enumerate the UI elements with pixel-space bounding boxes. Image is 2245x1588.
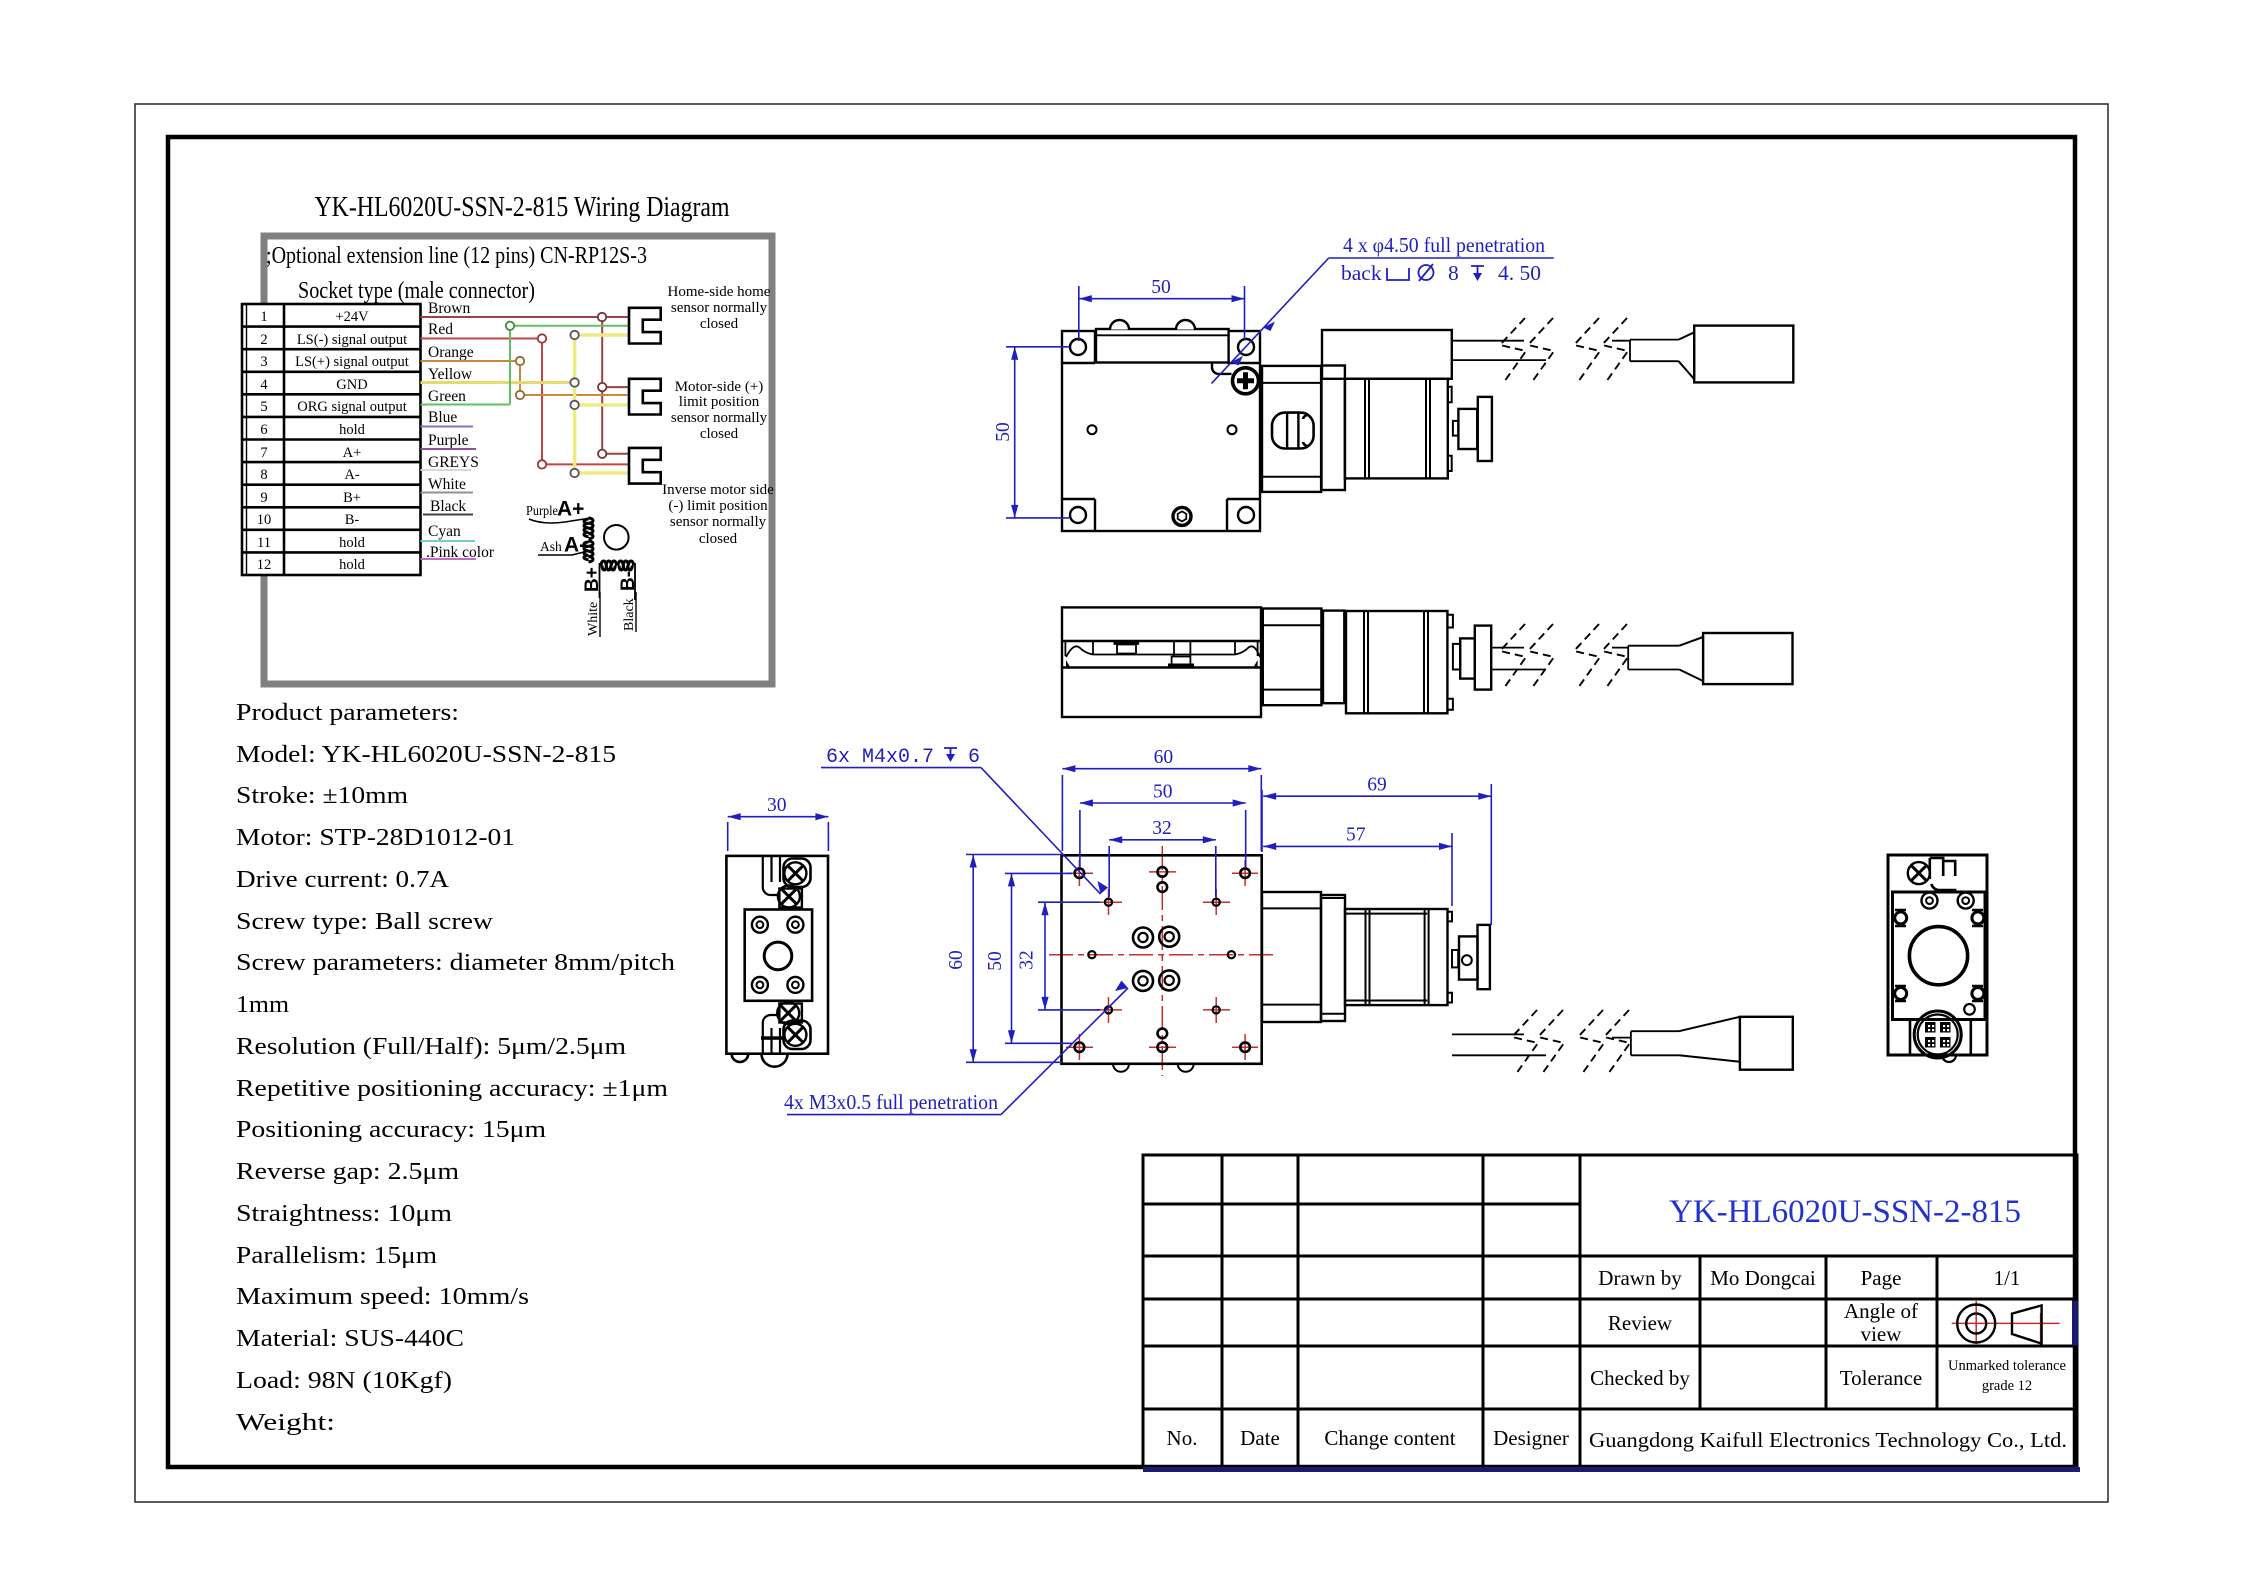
svg-text:Product parameters:: Product parameters: bbox=[236, 700, 459, 726]
svg-text:YK-HL6020U-SSN-2-815: YK-HL6020U-SSN-2-815 bbox=[1669, 1194, 2021, 1230]
svg-text:60: 60 bbox=[1154, 747, 1174, 768]
svg-text:closed: closed bbox=[700, 316, 739, 332]
svg-text:Drawn by: Drawn by bbox=[1598, 1266, 1682, 1290]
svg-text:30: 30 bbox=[767, 795, 787, 816]
svg-text:5: 5 bbox=[260, 399, 267, 415]
svg-text:hold: hold bbox=[339, 557, 366, 573]
svg-text:Repetitive positioning accurac: Repetitive positioning accuracy: ±1μm bbox=[236, 1076, 668, 1102]
svg-text:LS(+) signal output: LS(+) signal output bbox=[295, 354, 409, 370]
svg-text:Brown: Brown bbox=[428, 300, 470, 317]
svg-text:Tolerance: Tolerance bbox=[1840, 1366, 1922, 1390]
svg-text:Maximum speed: 10mm/s: Maximum speed: 10mm/s bbox=[236, 1284, 529, 1310]
svg-text:A+: A+ bbox=[343, 445, 362, 461]
svg-text:hold: hold bbox=[339, 422, 366, 438]
svg-text:limit position: limit position bbox=[679, 394, 760, 410]
svg-text:Ash: Ash bbox=[540, 539, 562, 554]
svg-text:Drive current: 0.7A: Drive current: 0.7A bbox=[236, 867, 450, 893]
svg-text:7: 7 bbox=[260, 445, 267, 461]
svg-text:closed: closed bbox=[699, 531, 738, 547]
svg-text:;Optional extension line (12 p: ;Optional extension line (12 pins) CN-RP… bbox=[266, 243, 647, 269]
svg-text:Weight:: Weight: bbox=[236, 1410, 335, 1436]
svg-text:8: 8 bbox=[260, 467, 267, 483]
svg-text:4. 50: 4. 50 bbox=[1498, 261, 1541, 285]
svg-text:Change content: Change content bbox=[1324, 1426, 1455, 1450]
svg-text:10: 10 bbox=[257, 512, 272, 528]
svg-text:8: 8 bbox=[1448, 261, 1459, 285]
svg-text:Inverse motor side: Inverse motor side bbox=[662, 482, 774, 498]
svg-text:1/1: 1/1 bbox=[1994, 1266, 2021, 1290]
svg-text:A-: A- bbox=[344, 467, 359, 483]
svg-text:Cyan: Cyan bbox=[428, 523, 461, 540]
svg-text:sensor normally: sensor normally bbox=[671, 410, 768, 426]
svg-text:Resolution (Full/Half): 5μm/2.: Resolution (Full/Half): 5μm/2.5μm bbox=[236, 1034, 626, 1060]
svg-text:B-: B- bbox=[345, 512, 360, 528]
svg-text:Checked by: Checked by bbox=[1590, 1366, 1690, 1390]
svg-text:Home-side home: Home-side home bbox=[668, 284, 771, 300]
svg-text:Black: Black bbox=[622, 598, 637, 631]
svg-text:57: 57 bbox=[1346, 825, 1366, 846]
svg-text:grade 12: grade 12 bbox=[1982, 1378, 2032, 1394]
svg-text:Socket type (male connector): Socket type (male connector) bbox=[298, 278, 535, 304]
svg-text:4: 4 bbox=[260, 377, 268, 393]
svg-text:GREYS: GREYS bbox=[428, 454, 479, 471]
svg-text:Mo Dongcai: Mo Dongcai bbox=[1710, 1266, 1816, 1290]
svg-text:Review: Review bbox=[1608, 1311, 1673, 1335]
svg-text:back: back bbox=[1341, 261, 1382, 285]
svg-text:Blue: Blue bbox=[428, 409, 457, 426]
svg-text:Black: Black bbox=[430, 498, 466, 515]
svg-text:Screw type: Ball screw: Screw type: Ball screw bbox=[236, 909, 494, 935]
svg-text:Orange: Orange bbox=[428, 344, 474, 361]
svg-text:3: 3 bbox=[260, 354, 267, 370]
svg-text:B+: B+ bbox=[582, 567, 603, 592]
svg-text:11: 11 bbox=[257, 535, 271, 551]
svg-text:Stroke: ±10mm: Stroke: ±10mm bbox=[236, 783, 408, 809]
svg-text:Purple: Purple bbox=[428, 432, 469, 449]
svg-text:Motor: STP-28D1012-01: Motor: STP-28D1012-01 bbox=[236, 825, 515, 851]
svg-text:Straightness: 10μm: Straightness: 10μm bbox=[236, 1201, 452, 1227]
svg-text:(-) limit position: (-) limit position bbox=[668, 498, 768, 514]
svg-text:A+: A+ bbox=[557, 498, 584, 521]
svg-text:50: 50 bbox=[993, 422, 1014, 442]
svg-text:6x M4x0.7: 6x M4x0.7 bbox=[826, 746, 934, 769]
svg-text:50: 50 bbox=[985, 951, 1006, 971]
svg-text:6: 6 bbox=[260, 422, 267, 438]
svg-text:Material: SUS-440C: Material: SUS-440C bbox=[236, 1326, 464, 1352]
svg-text:view: view bbox=[1861, 1322, 1903, 1346]
svg-text:32: 32 bbox=[1016, 950, 1037, 970]
svg-text:12: 12 bbox=[257, 557, 272, 573]
svg-text:9: 9 bbox=[260, 490, 267, 506]
svg-text:Purple: Purple bbox=[526, 503, 558, 518]
svg-text:hold: hold bbox=[339, 535, 366, 551]
svg-text:Unmarked tolerance: Unmarked tolerance bbox=[1948, 1358, 2066, 1374]
svg-text:Motor-side (+): Motor-side (+) bbox=[675, 379, 764, 395]
svg-text:Reverse gap: 2.5μm: Reverse gap: 2.5μm bbox=[236, 1159, 459, 1185]
svg-text:Model: YK-HL6020U-SSN-2-815: Model: YK-HL6020U-SSN-2-815 bbox=[236, 742, 616, 768]
svg-text:ORG signal output: ORG signal output bbox=[297, 399, 407, 415]
svg-text:Page: Page bbox=[1861, 1266, 1902, 1290]
svg-text:White: White bbox=[586, 602, 601, 636]
svg-text:Green: Green bbox=[428, 388, 466, 405]
svg-text:Screw parameters: diameter 8mm: Screw parameters: diameter 8mm/pitch bbox=[236, 950, 675, 976]
svg-text:69: 69 bbox=[1367, 775, 1387, 796]
svg-text:GND: GND bbox=[336, 377, 367, 393]
svg-text:Angle of: Angle of bbox=[1844, 1299, 1918, 1323]
svg-text:1mm: 1mm bbox=[236, 992, 289, 1018]
svg-text:60: 60 bbox=[946, 950, 967, 970]
svg-text:YK-HL6020U-SSN-2-815 Wiring Di: YK-HL6020U-SSN-2-815 Wiring Diagram bbox=[315, 192, 730, 223]
svg-text:1: 1 bbox=[260, 309, 267, 325]
svg-text:Date: Date bbox=[1240, 1426, 1280, 1450]
svg-text:Designer: Designer bbox=[1493, 1426, 1569, 1450]
svg-text:No.: No. bbox=[1167, 1426, 1198, 1450]
svg-text:4 x φ4.50 full penetration: 4 x φ4.50 full penetration bbox=[1343, 233, 1545, 257]
svg-text:2: 2 bbox=[260, 332, 267, 348]
svg-text:Yellow: Yellow bbox=[428, 366, 473, 383]
svg-text:sensor normally: sensor normally bbox=[670, 514, 767, 530]
svg-text:Positioning accuracy: 15μm: Positioning accuracy: 15μm bbox=[236, 1117, 546, 1143]
svg-text:sensor normally: sensor normally bbox=[671, 300, 768, 316]
svg-text:B+: B+ bbox=[343, 490, 361, 506]
svg-text:50: 50 bbox=[1153, 782, 1173, 803]
svg-text:4x M3x0.5 full penetration: 4x M3x0.5 full penetration bbox=[784, 1090, 998, 1114]
svg-text:32: 32 bbox=[1152, 818, 1172, 839]
svg-text:50: 50 bbox=[1151, 277, 1171, 298]
svg-text:Guangdong Kaifull Electronics: Guangdong Kaifull Electronics Technology… bbox=[1589, 1428, 2067, 1452]
svg-text:LS(-) signal output: LS(-) signal output bbox=[297, 332, 407, 348]
svg-text:+24V: +24V bbox=[335, 309, 369, 325]
svg-text:White: White bbox=[428, 476, 466, 493]
svg-text:Load: 98N (10Kgf): Load: 98N (10Kgf) bbox=[236, 1368, 452, 1394]
svg-text:6: 6 bbox=[968, 746, 980, 769]
svg-text:closed: closed bbox=[700, 426, 739, 442]
svg-text:Parallelism: 15μm: Parallelism: 15μm bbox=[236, 1243, 437, 1269]
svg-text:B-: B- bbox=[618, 571, 639, 591]
svg-text:Red: Red bbox=[428, 321, 453, 338]
